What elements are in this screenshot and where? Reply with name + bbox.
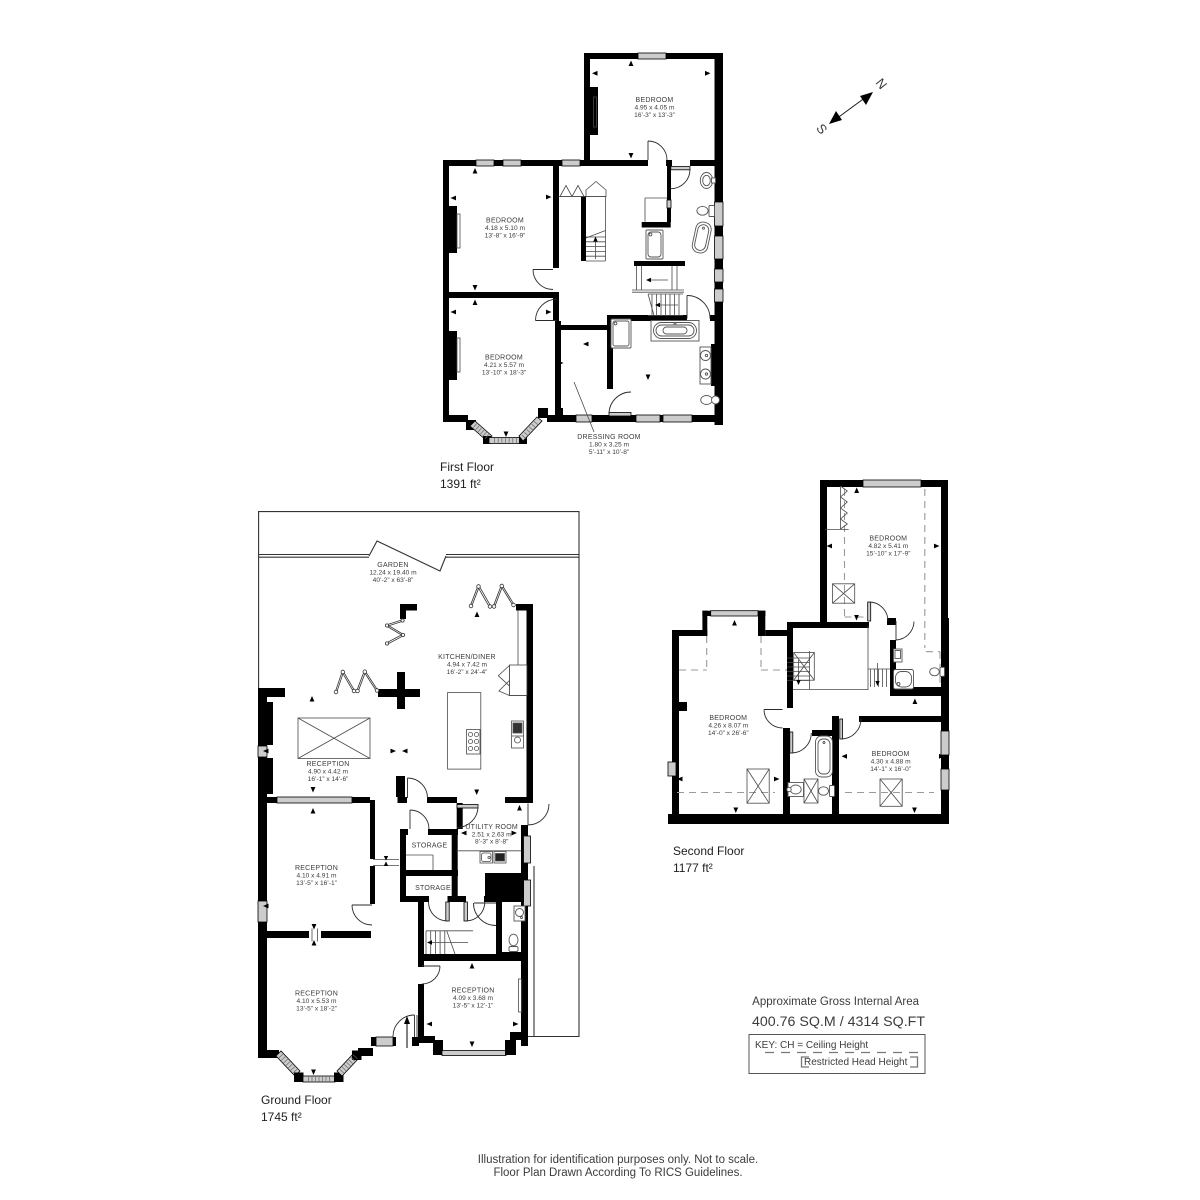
svg-text:4.26 x 8.07 m: 4.26 x 8.07 m xyxy=(708,723,748,730)
svg-text:13’-5” x 16’-1”: 13’-5” x 16’-1” xyxy=(296,880,337,887)
svg-text:14’-0” x 26’-6”: 14’-0” x 26’-6” xyxy=(708,730,749,737)
svg-text:Restricted Head Height: Restricted Head Height xyxy=(804,1057,908,1068)
svg-text:4.10 x 5.53 m: 4.10 x 5.53 m xyxy=(297,998,337,1005)
svg-text:12.24 x 19.40 m: 12.24 x 19.40 m xyxy=(369,570,417,577)
svg-text:4.10 x 4.91 m: 4.10 x 4.91 m xyxy=(297,873,337,880)
svg-text:KITCHEN/DINER: KITCHEN/DINER xyxy=(438,654,496,661)
svg-text:16’-2” x 24’-4”: 16’-2” x 24’-4” xyxy=(447,669,488,676)
svg-text:13’-5” x 12’-1”: 13’-5” x 12’-1” xyxy=(453,1003,494,1010)
svg-text:UTILITY ROOM: UTILITY ROOM xyxy=(465,824,518,831)
svg-text:BEDROOM: BEDROOM xyxy=(485,355,523,362)
svg-text:4.30 x 4.88 m: 4.30 x 4.88 m xyxy=(871,759,911,766)
svg-text:GARDEN: GARDEN xyxy=(377,562,408,569)
svg-text:16’-1” x 14’-6”: 16’-1” x 14’-6” xyxy=(308,776,349,783)
svg-text:1.80 x 3.25 m: 1.80 x 3.25 m xyxy=(589,442,629,449)
svg-text:BEDROOM: BEDROOM xyxy=(486,218,524,225)
svg-text:Floor Plan Drawn According To: Floor Plan Drawn According To RICS Guide… xyxy=(493,1167,742,1179)
svg-text:13’-8” x 16’-9”: 13’-8” x 16’-9” xyxy=(485,232,526,239)
svg-text:Ground Floor: Ground Floor xyxy=(261,1093,332,1107)
svg-text:BEDROOM: BEDROOM xyxy=(872,751,910,758)
svg-text:DRESSING ROOM: DRESSING ROOM xyxy=(577,434,641,441)
svg-text:RECEPTION: RECEPTION xyxy=(451,988,494,995)
svg-text:KEY: CH = Ceiling Height: KEY: CH = Ceiling Height xyxy=(755,1040,868,1051)
svg-text:Second Floor: Second Floor xyxy=(673,844,744,858)
svg-text:BEDROOM: BEDROOM xyxy=(869,536,907,543)
svg-text:4.94 x 7.42 m: 4.94 x 7.42 m xyxy=(447,662,487,669)
svg-text:4.09 x 3.68 m: 4.09 x 3.68 m xyxy=(453,995,493,1002)
svg-text:4.18 x 5.10 m: 4.18 x 5.10 m xyxy=(485,225,525,232)
svg-text:4.95 x 4.05 m: 4.95 x 4.05 m xyxy=(635,105,675,112)
svg-text:1177 ft²: 1177 ft² xyxy=(673,861,713,875)
svg-text:STORAGE: STORAGE xyxy=(412,843,448,850)
svg-text:1745 ft²: 1745 ft² xyxy=(261,1110,302,1124)
svg-text:First Floor: First Floor xyxy=(440,460,494,474)
svg-text:13’-5” x 18’-2”: 13’-5” x 18’-2” xyxy=(296,1006,337,1013)
svg-text:14’-1” x 16’-0”: 14’-1” x 16’-0” xyxy=(870,766,911,773)
svg-text:16’-3” x 13’-3”: 16’-3” x 13’-3” xyxy=(634,112,675,119)
svg-text:15’-10” x 17’-9”: 15’-10” x 17’-9” xyxy=(866,550,910,557)
svg-text:RECEPTION: RECEPTION xyxy=(295,865,338,872)
svg-text:400.76 SQ.M / 4314 SQ.FT: 400.76 SQ.M / 4314 SQ.FT xyxy=(752,1014,925,1030)
svg-text:4.82 x 5.41 m: 4.82 x 5.41 m xyxy=(868,543,908,550)
svg-text:BEDROOM: BEDROOM xyxy=(636,97,674,104)
svg-text:BEDROOM: BEDROOM xyxy=(709,715,747,722)
svg-text:13’-10” x 18’-3”: 13’-10” x 18’-3” xyxy=(482,369,526,376)
svg-text:RECEPTION: RECEPTION xyxy=(295,991,338,998)
svg-text:8’-3” x 8’-8”: 8’-3” x 8’-8” xyxy=(475,839,508,846)
svg-text:5’-11” x 10’-8”: 5’-11” x 10’-8” xyxy=(589,449,629,456)
svg-text:RECEPTION: RECEPTION xyxy=(306,761,349,768)
svg-text:2.51 x 2.63 m: 2.51 x 2.63 m xyxy=(472,832,512,839)
svg-text:1391 ft²: 1391 ft² xyxy=(440,477,481,491)
svg-text:4.90 x 4.42 m: 4.90 x 4.42 m xyxy=(308,769,348,776)
svg-text:STORAGE: STORAGE xyxy=(415,885,451,892)
svg-text:4.21 x 5.57 m: 4.21 x 5.57 m xyxy=(484,362,524,369)
svg-text:40’-2” x 63’-8”: 40’-2” x 63’-8” xyxy=(373,577,414,584)
svg-text:Illustration for identificatio: Illustration for identification purposes… xyxy=(478,1154,758,1166)
svg-text:Approximate Gross Internal Are: Approximate Gross Internal Area xyxy=(752,996,919,1008)
